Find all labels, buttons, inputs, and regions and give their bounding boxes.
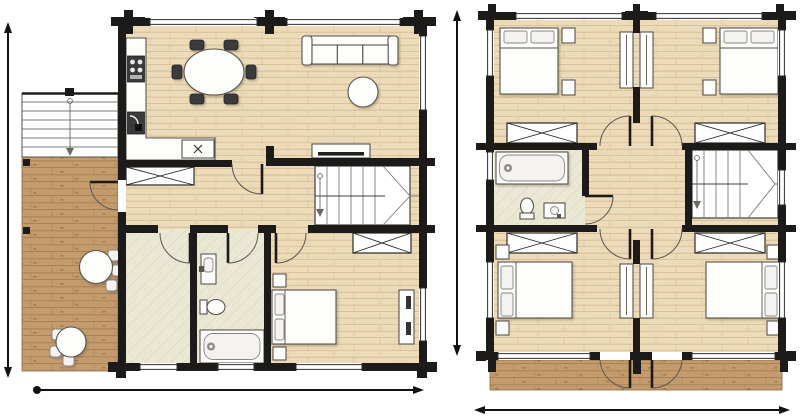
pillow xyxy=(531,31,554,43)
nightstand xyxy=(496,245,509,259)
horizontal-dimension-line xyxy=(33,386,424,394)
nightstand xyxy=(273,347,286,360)
railing-post xyxy=(65,88,74,96)
round-table xyxy=(80,251,113,284)
window xyxy=(486,262,494,318)
window xyxy=(778,170,786,205)
window xyxy=(296,363,362,371)
pillow xyxy=(765,266,777,289)
washbasin xyxy=(544,203,565,218)
window xyxy=(498,352,590,360)
stove-icon xyxy=(128,56,145,82)
bathtub xyxy=(200,330,264,363)
dining-chair xyxy=(246,65,256,79)
kitchen-appliance-icon xyxy=(128,112,145,134)
dining-chair xyxy=(224,40,238,50)
bathtub xyxy=(496,152,568,184)
tv-sideboard xyxy=(312,144,370,158)
hall-wardrobe xyxy=(126,167,194,185)
nightstand xyxy=(562,80,575,95)
coffee-table xyxy=(348,77,378,107)
dining-table-top xyxy=(184,49,244,95)
window xyxy=(486,30,494,76)
floor-plans-drawing xyxy=(0,0,800,417)
window xyxy=(692,352,775,360)
interior-staircase xyxy=(315,166,419,225)
wardrobe xyxy=(507,123,577,143)
window xyxy=(419,36,427,110)
window xyxy=(218,363,254,371)
window xyxy=(656,12,762,20)
window xyxy=(486,152,494,180)
pillow xyxy=(501,293,513,316)
toilet xyxy=(200,300,225,315)
dining-chair xyxy=(190,40,204,50)
nightstand xyxy=(703,28,716,43)
pillow xyxy=(724,31,747,43)
terrace-chair xyxy=(106,280,117,291)
counter-sink xyxy=(182,140,214,158)
vertical-dimension-line xyxy=(4,22,12,378)
floor-plans-canvas xyxy=(0,0,800,417)
upper-staircase xyxy=(692,150,778,218)
double-bed xyxy=(500,28,558,94)
bedroom-wardrobe xyxy=(353,233,411,253)
pillow xyxy=(275,319,284,340)
dining-chair xyxy=(190,94,204,104)
window xyxy=(778,30,786,76)
double-bed xyxy=(498,262,572,318)
terrace-post xyxy=(23,159,30,166)
pillow xyxy=(504,31,527,43)
window xyxy=(287,18,400,26)
washbasin xyxy=(199,254,216,284)
dining-chair xyxy=(172,65,182,79)
exterior-stairs xyxy=(22,88,118,157)
pillow xyxy=(501,266,513,289)
pillow xyxy=(275,294,284,315)
nightstand xyxy=(703,80,716,95)
ground-floor-plan xyxy=(4,10,437,394)
sofa xyxy=(302,36,398,65)
toilet xyxy=(520,198,534,219)
entry-door-glazed xyxy=(140,363,177,371)
nightstand xyxy=(496,321,509,335)
upper-floor-plan xyxy=(453,4,796,414)
window xyxy=(516,12,622,20)
nightstand xyxy=(273,274,286,287)
nightstand xyxy=(562,28,575,43)
dresser xyxy=(399,290,414,344)
terrace xyxy=(22,157,123,371)
double-bed xyxy=(706,262,780,318)
wardrobe xyxy=(695,123,765,143)
wardrobe xyxy=(507,233,577,253)
double-bed xyxy=(272,290,336,344)
double-bed xyxy=(720,28,778,94)
window xyxy=(778,262,786,318)
horizontal-dimension-line xyxy=(474,406,790,414)
window xyxy=(150,18,257,26)
pillow xyxy=(751,31,774,43)
pillow xyxy=(765,293,777,316)
round-table xyxy=(56,327,86,357)
wardrobe xyxy=(695,233,765,253)
window xyxy=(419,288,427,341)
vertical-dimension-line xyxy=(453,10,461,356)
dining-chair xyxy=(224,94,238,104)
terrace-post xyxy=(23,227,30,234)
